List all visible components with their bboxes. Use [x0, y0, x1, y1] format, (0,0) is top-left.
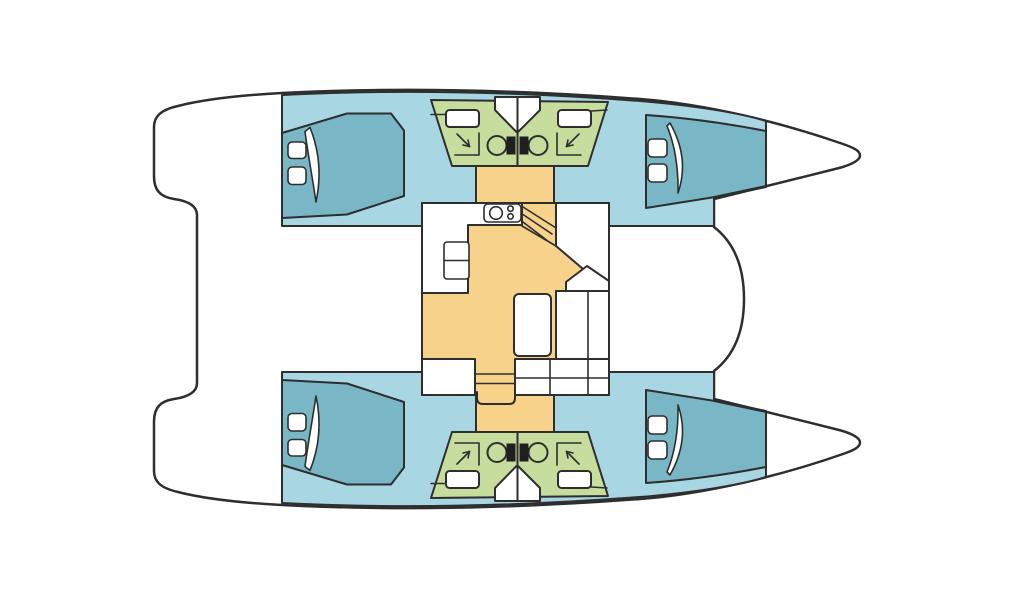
stairs-landing	[477, 392, 515, 404]
nav-seat	[422, 359, 475, 395]
saloon	[422, 203, 609, 404]
hull-corridor	[476, 166, 554, 204]
catamaran-floorplan-page	[0, 0, 1024, 600]
catamaran-floorplan	[0, 0, 1024, 600]
forward-berth	[646, 115, 766, 208]
galley-cabinet	[444, 242, 469, 279]
settee-side	[556, 291, 609, 359]
pillow	[648, 139, 667, 157]
pillow	[648, 164, 667, 182]
toilet-tank	[520, 137, 529, 155]
sink	[446, 110, 479, 127]
aft-berth	[282, 114, 404, 219]
pillow	[288, 142, 306, 159]
toilet-tank	[507, 137, 516, 155]
stove	[484, 204, 521, 222]
pillow	[288, 167, 306, 185]
saloon-table	[514, 294, 551, 356]
vanity-partition	[591, 110, 607, 111]
settee-bottom	[515, 359, 609, 395]
sink	[558, 110, 591, 127]
